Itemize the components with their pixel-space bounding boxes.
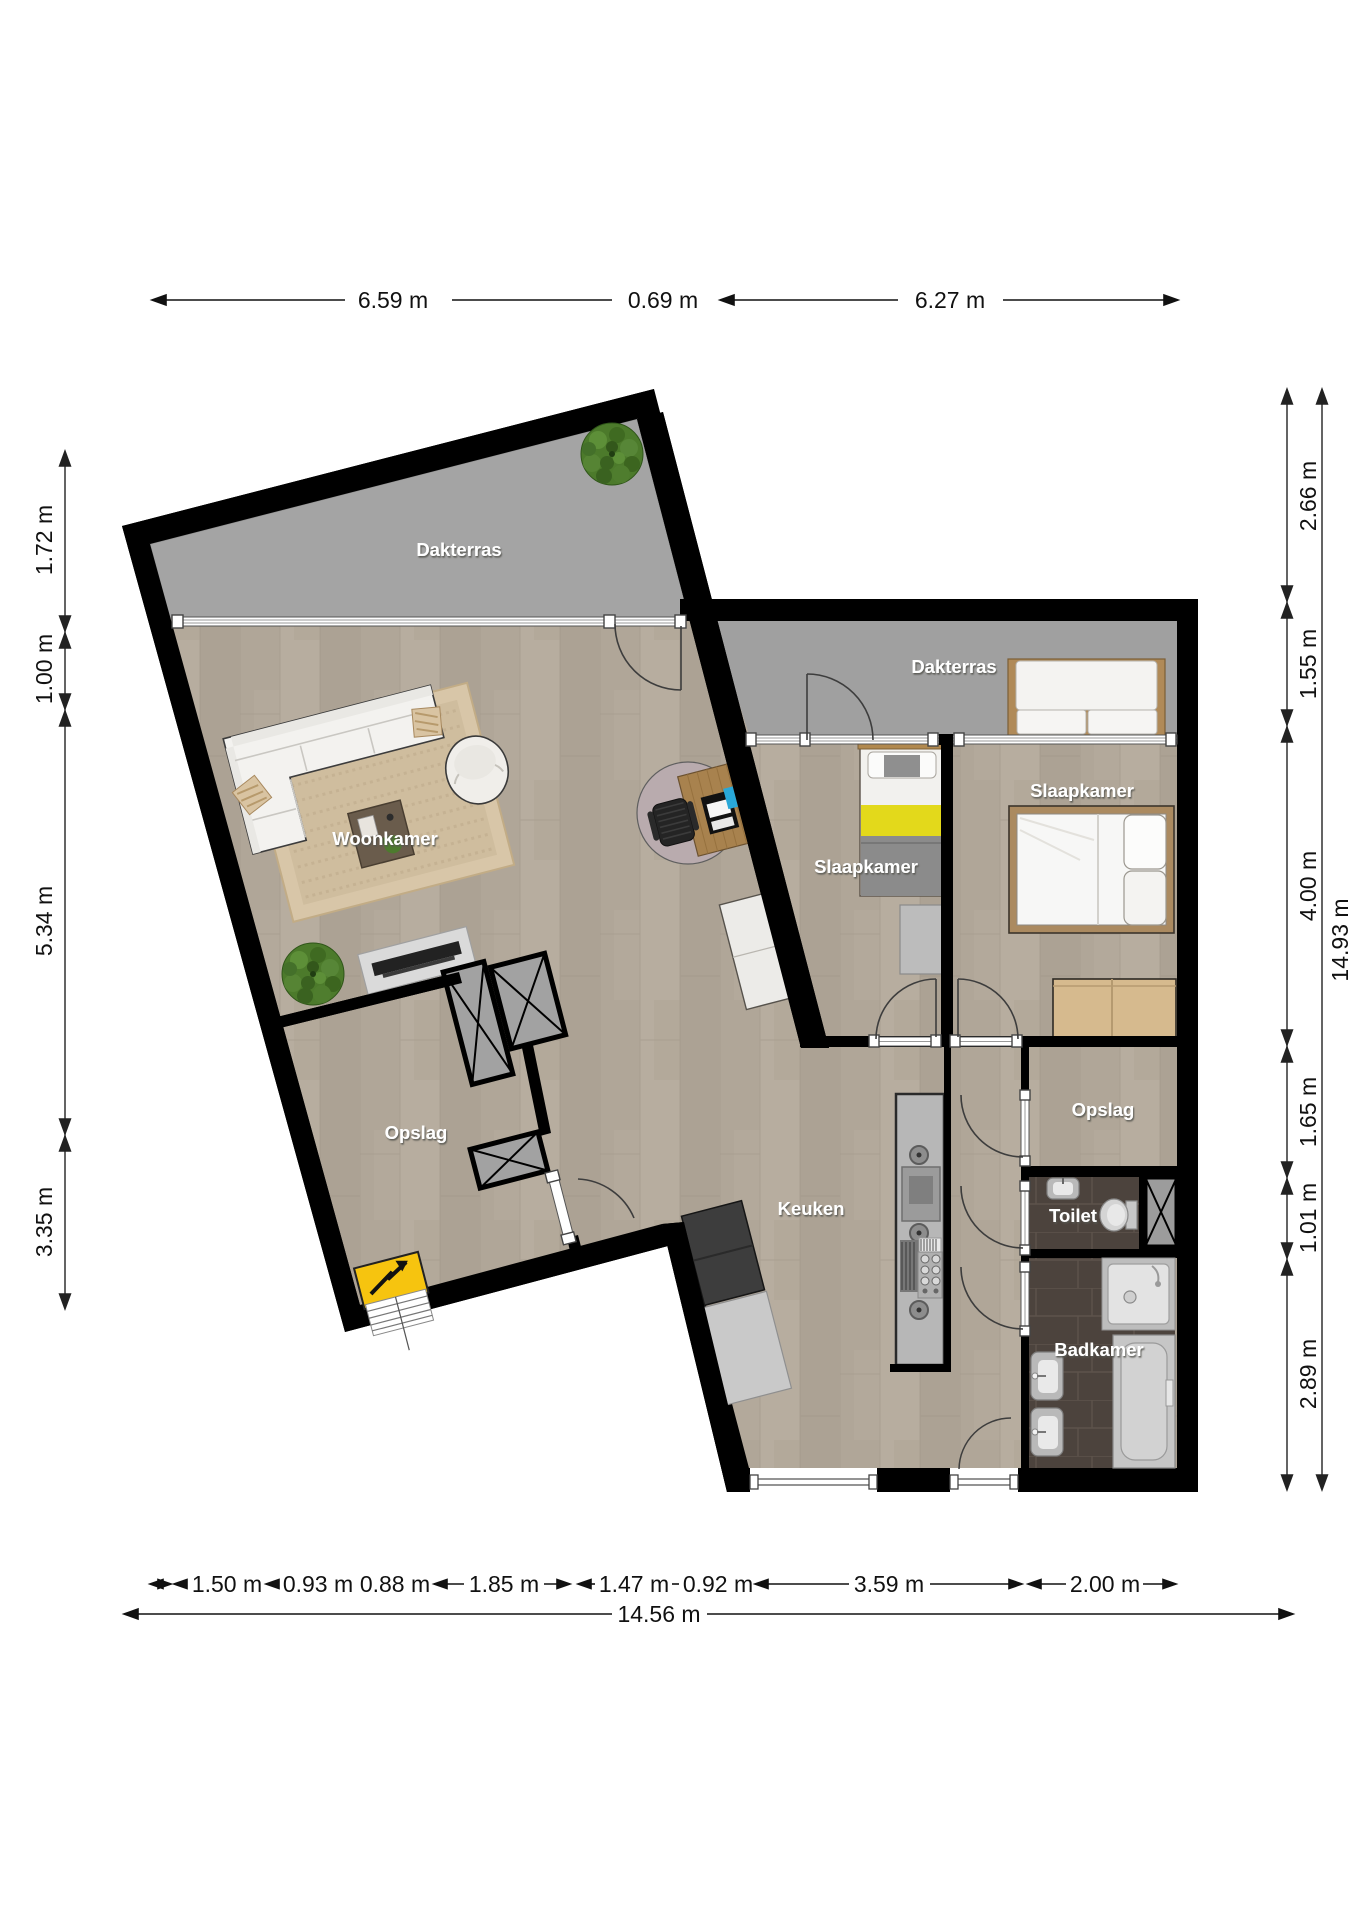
svg-text:Opslag: Opslag (385, 1122, 448, 1143)
svg-text:Dakterras: Dakterras (911, 656, 996, 677)
svg-text:2.89 m: 2.89 m (1295, 1339, 1321, 1409)
svg-text:0.93 m: 0.93 m (283, 1571, 353, 1597)
svg-text:5.34 m: 5.34 m (31, 886, 57, 956)
svg-text:1.50 m: 1.50 m (192, 1571, 262, 1597)
svg-text:6.59 m: 6.59 m (358, 287, 428, 313)
svg-text:3.59 m: 3.59 m (854, 1571, 924, 1597)
svg-text:Badkamer: Badkamer (1054, 1339, 1143, 1360)
svg-text:2.66 m: 2.66 m (1295, 461, 1321, 531)
svg-text:Toilet: Toilet (1049, 1205, 1097, 1226)
svg-text:1.47 m: 1.47 m (599, 1571, 669, 1597)
svg-text:1.55 m: 1.55 m (1295, 629, 1321, 699)
svg-text:Slaapkamer: Slaapkamer (1030, 780, 1134, 801)
svg-text:6.27 m: 6.27 m (915, 287, 985, 313)
svg-text:Woonkamer: Woonkamer (332, 828, 438, 849)
svg-text:Opslag: Opslag (1072, 1099, 1135, 1120)
svg-text:1.00 m: 1.00 m (31, 634, 57, 704)
svg-text:14.93 m: 14.93 m (1327, 898, 1353, 981)
svg-text:Slaapkamer: Slaapkamer (814, 856, 918, 877)
svg-text:14.56 m: 14.56 m (617, 1601, 700, 1627)
svg-text:Dakterras: Dakterras (416, 539, 501, 560)
svg-text:0.92 m: 0.92 m (683, 1571, 753, 1597)
svg-text:3.35 m: 3.35 m (31, 1187, 57, 1257)
svg-text:1.01 m: 1.01 m (1295, 1183, 1321, 1253)
svg-text:1.72 m: 1.72 m (31, 505, 57, 575)
svg-text:1.65 m: 1.65 m (1295, 1077, 1321, 1147)
svg-text:4.00 m: 4.00 m (1295, 851, 1321, 921)
svg-text:Keuken: Keuken (778, 1198, 845, 1219)
svg-text:2.00 m: 2.00 m (1070, 1571, 1140, 1597)
svg-text:0.88 m: 0.88 m (360, 1571, 430, 1597)
svg-text:1.85 m: 1.85 m (469, 1571, 539, 1597)
svg-text:0.69 m: 0.69 m (628, 287, 698, 313)
